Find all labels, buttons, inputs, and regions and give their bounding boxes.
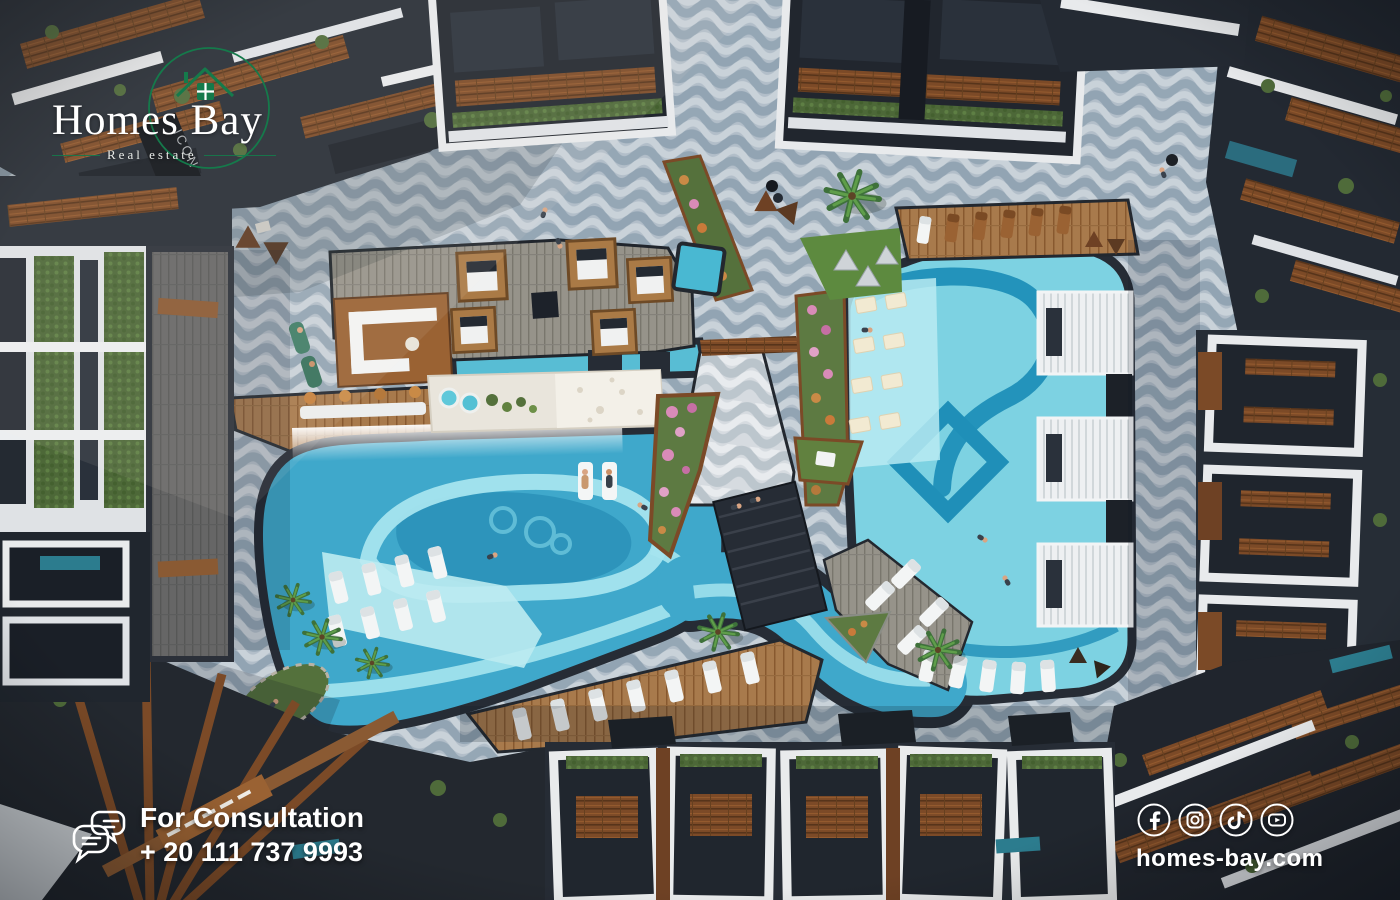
consultation-phone: + 20 111 737 9993 bbox=[140, 837, 364, 868]
consultation-block: For Consultation + 20 111 737 9993 bbox=[70, 802, 364, 868]
social-icons-row bbox=[1136, 802, 1306, 838]
footer-social-block: homes-bay.com bbox=[1136, 802, 1306, 873]
youtube-icon bbox=[1259, 802, 1295, 838]
consultation-label: For Consultation bbox=[140, 802, 364, 834]
tagline-rule-left bbox=[52, 155, 100, 156]
brand-tagline-row: Real estate bbox=[52, 147, 252, 163]
brand-tagline: Real estate bbox=[107, 147, 197, 163]
facebook-icon bbox=[1136, 802, 1172, 838]
instagram-icon bbox=[1177, 802, 1213, 838]
website-url: homes-bay.com bbox=[1136, 845, 1306, 873]
chat-bubbles-icon bbox=[70, 802, 128, 864]
tiktok-icon bbox=[1218, 802, 1254, 838]
tagline-rule-right bbox=[204, 155, 276, 156]
real-estate-ad-image: { "brand": { "name": "Homes Bay", "tagli… bbox=[0, 0, 1400, 900]
brand-name: Homes Bay bbox=[52, 96, 263, 145]
